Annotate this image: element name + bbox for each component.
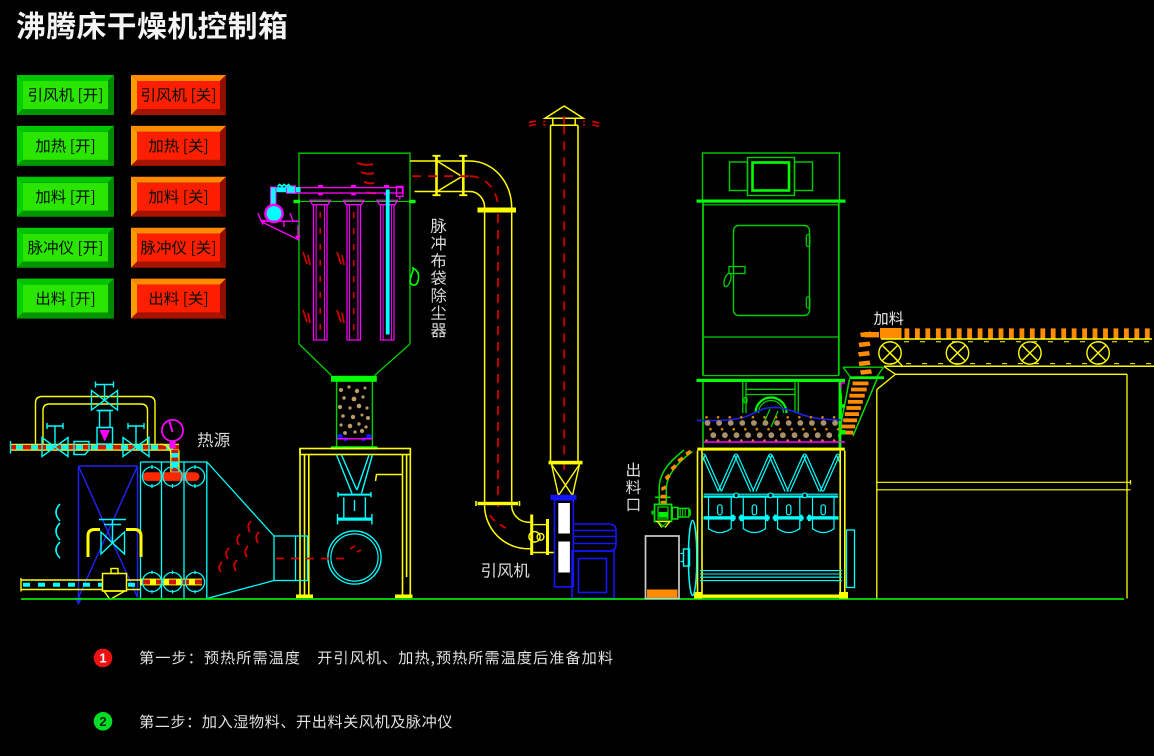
svg-text:2: 2 — [99, 714, 106, 729]
svg-text:1: 1 — [99, 651, 106, 666]
